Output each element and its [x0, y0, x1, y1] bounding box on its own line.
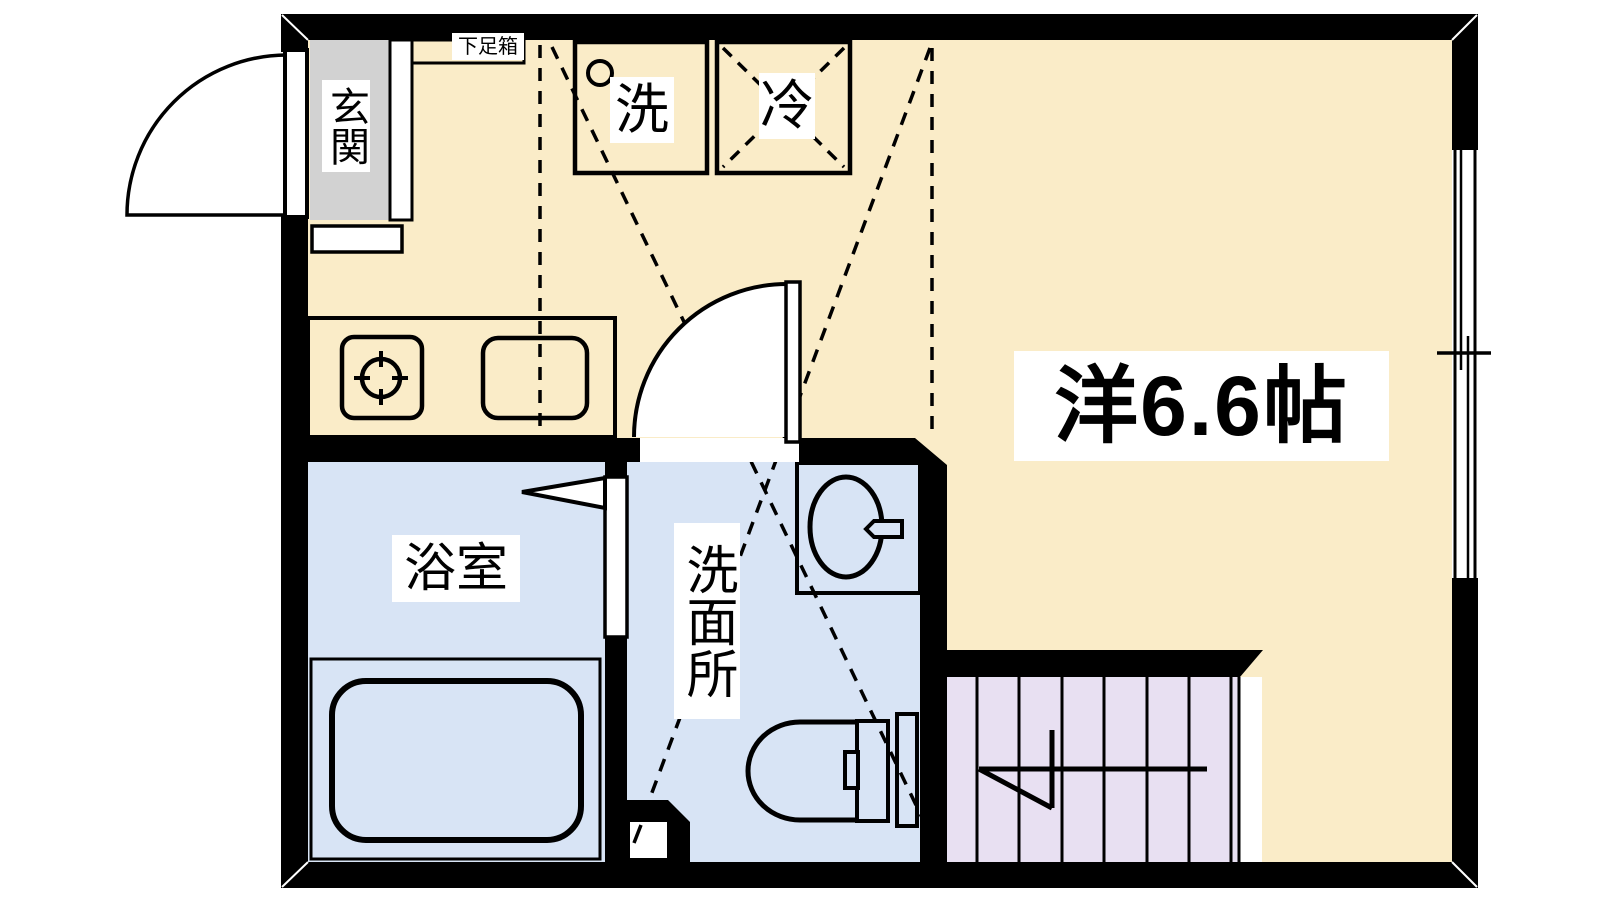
- wall-right-upper: [1452, 14, 1478, 150]
- wall-bath-divider-upper: [605, 459, 627, 477]
- wall-left: [281, 215, 308, 888]
- entrance-frame: [390, 40, 412, 220]
- floor-plan: 玄関 下足箱 洗 冷 洋6.6帖 浴室 洗面所: [0, 0, 1600, 900]
- toilet-flush: [845, 752, 858, 788]
- bathroom-door: [605, 477, 627, 637]
- label-bathroom: 浴室: [392, 535, 520, 602]
- stair-landing: [1240, 677, 1262, 863]
- entrance-door-swing: [127, 55, 287, 215]
- wall-left-upper: [281, 14, 308, 52]
- wall-right-lower: [1452, 578, 1478, 888]
- label-refrigerator: 冷: [759, 73, 815, 139]
- label-western-room: 洋6.6帖: [1014, 351, 1389, 461]
- wall-bottom: [281, 862, 1478, 888]
- wall-bath-divider-lower: [605, 637, 627, 863]
- wall-stairs-band: [947, 650, 1263, 677]
- label-entrance: 玄関: [322, 80, 370, 172]
- bathroom-floor: [308, 462, 605, 863]
- toilet-tank: [897, 714, 917, 826]
- label-washroom: 洗面所: [674, 523, 740, 719]
- washroom-door: [786, 282, 800, 442]
- label-shoe-box: 下足箱: [452, 33, 524, 60]
- basin-faucet: [866, 521, 902, 537]
- entrance-step: [312, 226, 402, 252]
- label-washer: 洗: [610, 77, 674, 143]
- entrance-door: [285, 50, 307, 217]
- washroom-door-opening: [640, 438, 799, 462]
- wall-kitchen-band: [282, 438, 648, 462]
